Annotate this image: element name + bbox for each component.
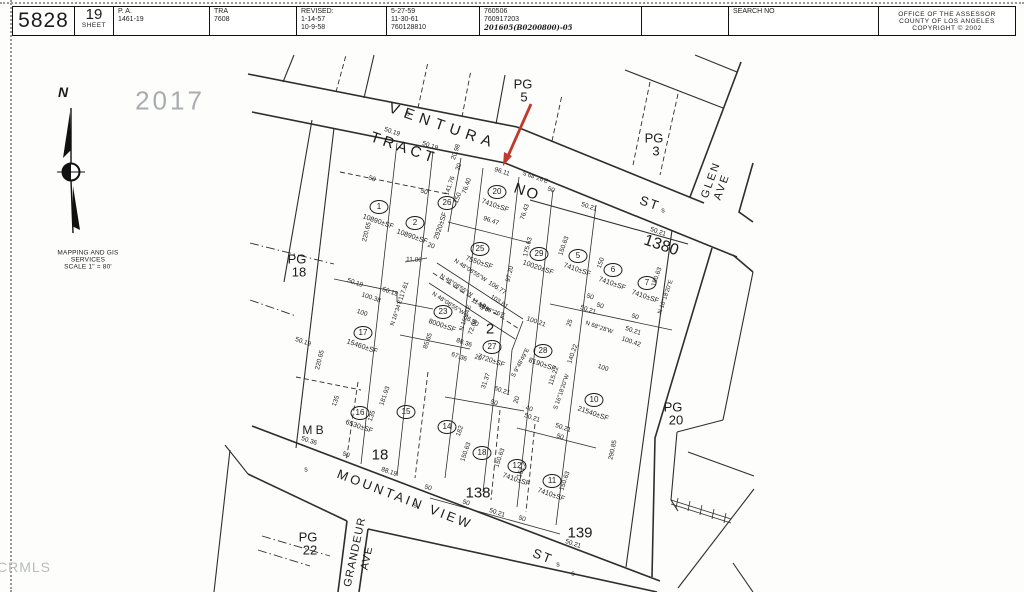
parcel-circle: 6: [604, 263, 623, 277]
page-ref: 22: [303, 543, 317, 558]
gis-caption: MAPPING AND GIS SERVICES SCALE 1" = 80': [57, 250, 118, 271]
parcel-circle: 29: [530, 247, 549, 261]
parcel-circle: 23: [434, 305, 453, 319]
station-mark: s: [304, 467, 308, 474]
parcel-circle: 10: [585, 393, 604, 407]
block-label: 18: [372, 447, 389, 464]
block-label: M B: [302, 423, 323, 437]
parcel-circle: 2: [406, 216, 425, 230]
page-ref: 18: [292, 265, 306, 280]
parcel-circle: 12: [508, 459, 527, 473]
crmls-watermark: CRMLS: [0, 559, 51, 575]
parcel-circle: 11: [543, 474, 562, 488]
assessor-map-sheet: 582819SHEETP. A.1461-19TRA7608REVISED:1-…: [0, 0, 1024, 592]
north-label: N: [58, 84, 68, 100]
north-arrow-icon: [57, 108, 85, 233]
station-mark: s: [661, 208, 665, 215]
parcel-circle: 16: [351, 406, 370, 420]
parcel-circle: 15: [397, 405, 416, 419]
parcel-circle: 20: [488, 185, 507, 199]
station-mark: s: [556, 562, 560, 569]
parcel-circle: 7: [638, 276, 657, 290]
parcel-circle: 5: [569, 249, 588, 263]
page-ref: 5: [520, 90, 527, 105]
parcel-circle: 18: [473, 446, 492, 460]
year-stamp: 2017: [135, 86, 205, 117]
parcel-circle: 14: [438, 420, 457, 434]
station-mark: s: [406, 111, 410, 118]
parcel-circle: 1: [370, 200, 389, 214]
block-label: 138: [465, 485, 490, 502]
parcel-circle: 28: [534, 344, 553, 358]
parcel-circle: 26: [438, 196, 457, 210]
parcel-circle: 25: [471, 242, 490, 256]
page-ref: 20: [669, 413, 683, 428]
block-label: 2: [486, 321, 494, 338]
page-ref: 3: [652, 144, 659, 159]
dimension-label: 11.06: [406, 256, 422, 264]
parcel-circle: 17: [354, 326, 373, 340]
station-mark: s: [571, 571, 575, 578]
parcel-circle: 27: [483, 340, 502, 354]
locator-arrow: [503, 104, 531, 166]
station-mark: s: [413, 503, 417, 510]
